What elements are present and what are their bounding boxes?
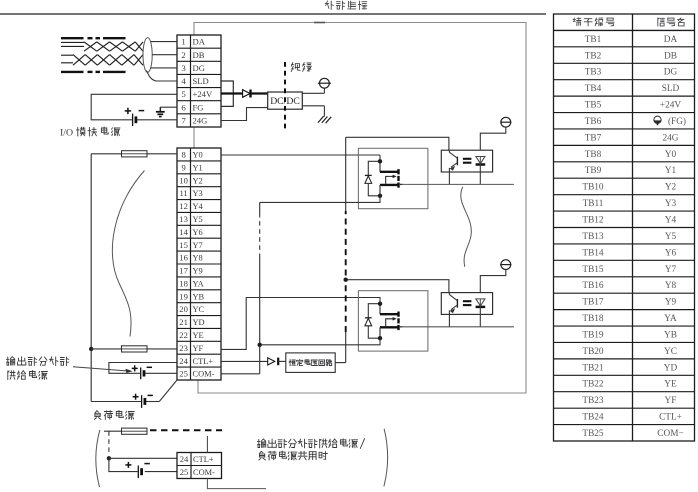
svg-text:22: 22 <box>179 330 188 340</box>
svg-text:16: 16 <box>179 253 188 263</box>
svg-text:Y8: Y8 <box>193 254 203 263</box>
svg-text:Y9: Y9 <box>193 267 203 276</box>
svg-text:25: 25 <box>180 467 189 477</box>
svg-text:TB19: TB19 <box>582 330 604 340</box>
svg-text:9: 9 <box>181 162 185 172</box>
svg-text:CTL+: CTL+ <box>193 357 214 366</box>
svg-text:DB: DB <box>664 51 677 61</box>
svg-text:3: 3 <box>181 63 186 73</box>
svg-text:YC: YC <box>664 347 677 357</box>
svg-text:10: 10 <box>179 175 188 185</box>
svg-text:TB11: TB11 <box>583 199 604 209</box>
svg-text:TB12: TB12 <box>582 215 604 225</box>
svg-text:DG: DG <box>193 63 205 73</box>
svg-text:TB25: TB25 <box>582 429 604 439</box>
svg-text:TB13: TB13 <box>582 232 604 242</box>
svg-text:YF: YF <box>193 344 204 353</box>
svg-text:Y8: Y8 <box>665 281 677 291</box>
svg-text:YD: YD <box>193 318 205 327</box>
svg-text:24: 24 <box>179 356 188 366</box>
svg-text:TB17: TB17 <box>582 298 604 308</box>
svg-text:18: 18 <box>179 278 188 288</box>
svg-text:Y9: Y9 <box>665 298 677 308</box>
svg-text:CTL+: CTL+ <box>193 455 214 464</box>
svg-text:Y6: Y6 <box>193 228 203 237</box>
svg-text:FG: FG <box>193 102 204 112</box>
svg-text:TB14: TB14 <box>582 248 604 258</box>
svg-text:COM-: COM- <box>193 370 215 379</box>
svg-text:YE: YE <box>664 380 677 390</box>
svg-text:Y4: Y4 <box>193 202 204 211</box>
svg-text:24G: 24G <box>662 133 678 143</box>
svg-text:DA: DA <box>664 35 678 45</box>
svg-text:TB8: TB8 <box>585 150 602 160</box>
svg-text:Y6: Y6 <box>665 248 677 258</box>
svg-text:TB5: TB5 <box>585 101 602 111</box>
svg-text:YD: YD <box>664 363 678 373</box>
svg-text:CTL+: CTL+ <box>659 413 682 423</box>
svg-text:Y5: Y5 <box>193 215 203 224</box>
svg-text:YF: YF <box>665 396 677 406</box>
svg-text:TB1: TB1 <box>585 35 602 45</box>
svg-text:TB21: TB21 <box>582 363 604 373</box>
svg-text:24G: 24G <box>193 116 208 126</box>
svg-text:8: 8 <box>181 150 185 160</box>
svg-text:YB: YB <box>193 292 205 301</box>
svg-text:TB9: TB9 <box>585 166 602 176</box>
svg-text:Y0: Y0 <box>665 150 677 160</box>
svg-text:12: 12 <box>179 201 188 211</box>
svg-text:TB24: TB24 <box>582 413 604 423</box>
svg-text:Y5: Y5 <box>665 232 677 242</box>
svg-text:TB20: TB20 <box>582 347 604 357</box>
svg-text:TB6: TB6 <box>585 117 602 127</box>
svg-text:SLD: SLD <box>662 84 680 94</box>
svg-text:Y2: Y2 <box>665 183 677 193</box>
svg-text:13: 13 <box>179 214 188 224</box>
svg-text:23: 23 <box>179 343 188 353</box>
svg-text:YB: YB <box>664 330 677 340</box>
svg-text:Y2: Y2 <box>193 176 203 185</box>
svg-text:14: 14 <box>179 227 188 237</box>
svg-text:TB22: TB22 <box>582 380 604 390</box>
svg-text:11: 11 <box>179 188 187 198</box>
svg-text:17: 17 <box>179 266 188 276</box>
svg-text:TB10: TB10 <box>582 183 604 193</box>
svg-text:COM−: COM− <box>657 429 683 439</box>
svg-text:TB4: TB4 <box>585 84 602 94</box>
svg-text:2: 2 <box>181 50 185 60</box>
svg-text:Y3: Y3 <box>665 199 677 209</box>
svg-text:YC: YC <box>193 305 205 314</box>
svg-text:1: 1 <box>181 37 185 47</box>
svg-text:Y0: Y0 <box>193 151 203 160</box>
svg-text:(FG): (FG) <box>668 116 686 127</box>
svg-text:SLD: SLD <box>193 76 209 86</box>
svg-text:DA: DA <box>193 37 206 47</box>
svg-text:YA: YA <box>664 314 677 324</box>
svg-text:+24V: +24V <box>193 89 213 99</box>
svg-text:Y3: Y3 <box>193 189 203 198</box>
svg-text:YE: YE <box>193 331 204 340</box>
svg-text:I/O: I/O <box>60 127 73 138</box>
svg-text:TB18: TB18 <box>582 314 604 324</box>
svg-text:4: 4 <box>181 76 186 86</box>
svg-text:19: 19 <box>179 291 188 301</box>
svg-text:21: 21 <box>179 317 188 327</box>
svg-text:7: 7 <box>181 116 186 126</box>
svg-text:Y4: Y4 <box>665 215 677 225</box>
svg-text:+24V: +24V <box>660 101 682 111</box>
svg-text:24: 24 <box>180 454 189 464</box>
svg-text:COM-: COM- <box>193 468 215 477</box>
svg-text:TB23: TB23 <box>582 396 604 406</box>
svg-text:20: 20 <box>179 304 188 314</box>
svg-text:5: 5 <box>181 89 186 99</box>
svg-text:TB16: TB16 <box>582 281 604 291</box>
svg-text:TB7: TB7 <box>585 133 602 143</box>
svg-text:Y1: Y1 <box>665 166 677 176</box>
svg-text:YA: YA <box>193 279 204 288</box>
svg-text:Y7: Y7 <box>193 241 203 250</box>
svg-text:Y7: Y7 <box>665 265 677 275</box>
svg-text:Y1: Y1 <box>193 163 203 172</box>
svg-text:6: 6 <box>181 102 186 112</box>
svg-text:25: 25 <box>179 369 188 379</box>
svg-text:DG: DG <box>664 68 678 78</box>
svg-text:15: 15 <box>179 240 188 250</box>
svg-text:DB: DB <box>193 50 205 60</box>
svg-text:TB3: TB3 <box>585 68 602 78</box>
svg-text:TB2: TB2 <box>585 51 602 61</box>
svg-text:TB15: TB15 <box>582 265 604 275</box>
